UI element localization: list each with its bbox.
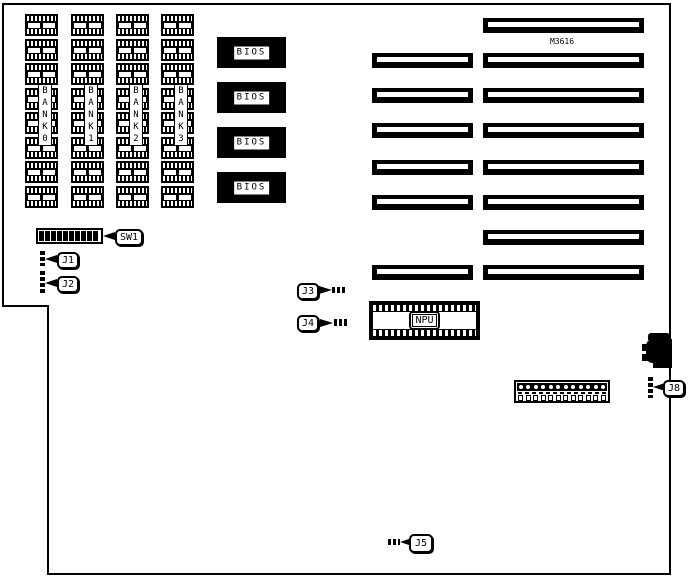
slot-contact-stripe (488, 199, 639, 204)
chip-window (119, 146, 131, 151)
chip-body-windows (164, 195, 191, 200)
dip-switch-position (75, 231, 80, 241)
expansion-slot-16bit-segment (372, 265, 473, 280)
chip-body-windows (119, 195, 146, 200)
bank-label-char: N (85, 109, 97, 121)
memory-chip (25, 161, 58, 183)
chip-window (74, 23, 86, 28)
npu-label: NPU (412, 314, 436, 327)
jumper-j3-pins (332, 287, 345, 293)
chip-window (179, 48, 191, 53)
slot-contact-stripe (488, 92, 639, 97)
bank-label-char: B (39, 85, 51, 97)
chip-window (28, 72, 40, 77)
memory-chip (116, 14, 149, 36)
chip-window (28, 146, 40, 151)
slot-contact-stripe (377, 269, 468, 274)
chip-window (43, 146, 55, 151)
chip-pins-top (73, 65, 102, 70)
chip-pins-top (118, 41, 147, 46)
chip-window (89, 23, 101, 28)
expansion-slot-main-segment (483, 195, 644, 210)
bank-label-char: N (39, 109, 51, 121)
bank-label-char: N (130, 109, 142, 121)
keyboard-connector-tab (642, 354, 648, 361)
chip-window (74, 170, 86, 175)
memory-chip (25, 14, 58, 36)
memory-chip (161, 63, 194, 85)
chip-body-windows (28, 146, 55, 151)
board-edge-step-horizontal (2, 305, 49, 307)
expansion-slot-main-segment (483, 18, 644, 33)
expansion-slot-main-segment (483, 53, 644, 68)
j8-label: J8 (663, 380, 685, 397)
power-pin-terminal (518, 395, 523, 401)
bank-label-char: K (175, 121, 187, 133)
chip-pins-bottom (73, 201, 102, 206)
expansion-slot-main-segment (483, 88, 644, 103)
chip-window (134, 48, 146, 53)
motherboard-diagram: M3616 SW1 J1 J2 J3 J4 J5 J8 NPU (0, 0, 688, 577)
slot-contact-stripe (377, 199, 468, 204)
chip-window (74, 48, 86, 53)
bank-label: BANK1 (84, 84, 98, 146)
chip-window (28, 170, 40, 175)
memory-chip (116, 63, 149, 85)
power-pin-terminal (593, 395, 598, 401)
chip-body-windows (74, 23, 101, 28)
board-edge-step-vertical (47, 305, 49, 575)
power-pin-terminal (563, 395, 568, 401)
power-pin-dot (541, 385, 545, 389)
chip-body-windows (119, 170, 146, 175)
chip-window (74, 195, 86, 200)
bank-label: BANK3 (174, 84, 188, 146)
power-connector-divider (518, 392, 606, 394)
bank-label-char: K (85, 121, 97, 133)
chip-body-windows (74, 146, 101, 151)
keyboard-connector-tab (642, 344, 648, 351)
chip-pins-bottom (73, 78, 102, 83)
expansion-slot-main-segment (483, 230, 644, 245)
board-edge-top (2, 3, 671, 5)
chip-pins-bottom (118, 29, 147, 34)
bank-label: BANK0 (38, 84, 52, 146)
bios-chip: BIOS (217, 127, 286, 158)
memory-chip (161, 39, 194, 61)
chip-pins-bottom (118, 152, 147, 157)
chip-window (164, 170, 176, 175)
chip-body-windows (74, 195, 101, 200)
dip-switch-position (51, 231, 56, 241)
sw1-label: SW1 (115, 229, 143, 246)
chip-pins-bottom (27, 54, 56, 59)
slot-contact-stripe (488, 269, 639, 274)
j3-arrow-icon (319, 286, 332, 294)
chip-window (164, 23, 176, 28)
j4-label: J4 (297, 315, 319, 332)
chip-pins-bottom (27, 78, 56, 83)
chip-body-windows (119, 23, 146, 28)
power-pin-terminal (548, 395, 553, 401)
chip-pins-bottom (118, 201, 147, 206)
chip-body-windows (164, 72, 191, 77)
memory-chip (116, 186, 149, 208)
dip-switch-position (39, 231, 44, 241)
slot-contact-stripe (377, 57, 468, 62)
chip-window (179, 72, 191, 77)
dip-switch-position (81, 231, 86, 241)
memory-chip (71, 161, 104, 183)
power-pin-terminal (578, 395, 583, 401)
bank-label-char: B (175, 85, 187, 97)
chip-pins-bottom (163, 29, 192, 34)
chip-window (43, 195, 55, 200)
expansion-slot-16bit-segment (372, 88, 473, 103)
bank-label-char: A (175, 97, 187, 109)
chip-pins-top (163, 65, 192, 70)
chip-pins-top (163, 16, 192, 21)
chip-pins-bottom (118, 78, 147, 83)
jumper-j4-pins (334, 319, 347, 326)
chip-body-windows (119, 48, 146, 53)
chip-window (28, 48, 40, 53)
chip-pins-top (73, 41, 102, 46)
expansion-slot-16bit-segment (372, 123, 473, 138)
bank-label-char: K (130, 121, 142, 133)
chip-pins-bottom (73, 29, 102, 34)
power-pin-terminal (571, 395, 576, 401)
chip-window (134, 146, 146, 151)
chip-window (119, 170, 131, 175)
chip-pins-bottom (73, 54, 102, 59)
memory-chip (161, 186, 194, 208)
memory-chip (71, 186, 104, 208)
chip-pins-top (163, 41, 192, 46)
jumper-j5-pins (388, 539, 400, 545)
keyboard-connector-icon (646, 339, 672, 363)
chip-window (179, 146, 191, 151)
chip-pins-top (73, 163, 102, 168)
bank-label-char: B (130, 85, 142, 97)
sw1-arrow-icon (103, 232, 115, 240)
chip-window (179, 170, 191, 175)
chip-pins-top (163, 163, 192, 168)
chip-pins-top (73, 16, 102, 21)
expansion-slot-main-segment (483, 160, 644, 175)
dip-switch-position (45, 231, 50, 241)
bank-label-char: A (130, 97, 142, 109)
chip-body-windows (28, 195, 55, 200)
j3-label: J3 (297, 283, 319, 300)
chip-window (134, 195, 146, 200)
chip-body-windows (74, 170, 101, 175)
slot-contact-stripe (488, 234, 639, 239)
chip-window (28, 195, 40, 200)
chip-body-windows (28, 23, 55, 28)
chip-body-windows (164, 23, 191, 28)
power-pin-dot (549, 385, 553, 389)
npu-socket: NPU (369, 301, 480, 340)
slot-contact-stripe (377, 127, 468, 132)
bank-label: BANK2 (129, 84, 143, 146)
expansion-slot-main-segment (483, 265, 644, 280)
chip-body-windows (28, 170, 55, 175)
chip-pins-bottom (73, 152, 102, 157)
power-connector (514, 380, 610, 403)
chip-pins-top (118, 16, 147, 21)
board-edge-right (669, 3, 671, 575)
chip-pins-bottom (163, 176, 192, 181)
chip-pins-bottom (163, 201, 192, 206)
dip-switch-sw1 (36, 228, 103, 244)
chip-pins-top (163, 188, 192, 193)
power-pin-dot (564, 385, 568, 389)
bios-label: BIOS (234, 91, 270, 104)
bios-chip: BIOS (217, 37, 286, 68)
bank-label-char: A (39, 97, 51, 109)
chip-body-windows (28, 48, 55, 53)
memory-chip (116, 39, 149, 61)
chip-window (43, 48, 55, 53)
dip-switch-position (93, 231, 98, 241)
chip-window (89, 146, 101, 151)
chip-window (119, 48, 131, 53)
j1-label: J1 (57, 252, 79, 269)
bank-label-char: B (85, 85, 97, 97)
power-pin-dot (556, 385, 560, 389)
slot-contact-stripe (377, 164, 468, 169)
power-connector-pin-row (517, 383, 607, 391)
expansion-slot-main-segment (483, 123, 644, 138)
chip-window (179, 195, 191, 200)
j4-arrow-icon (320, 319, 333, 327)
power-pin-dot (594, 385, 598, 389)
bank-label-char: 3 (175, 133, 187, 145)
dip-switch-position (87, 231, 92, 241)
memory-chip (71, 14, 104, 36)
memory-chip (25, 39, 58, 61)
chip-window (43, 23, 55, 28)
power-connector-terminal-row (518, 395, 606, 401)
chip-body-windows (164, 48, 191, 53)
bios-chip: BIOS (217, 172, 286, 203)
j1-arrow-icon (45, 255, 57, 263)
chip-window (74, 72, 86, 77)
chip-pins-top (118, 188, 147, 193)
npu-socket-body: NPU (373, 312, 476, 329)
chip-pins-bottom (27, 201, 56, 206)
bios-label: BIOS (234, 46, 270, 59)
power-pin-dot (579, 385, 583, 389)
npu-socket-pins-bottom (373, 330, 476, 336)
chip-window (89, 72, 101, 77)
chip-window (134, 23, 146, 28)
chip-window (119, 23, 131, 28)
chip-pins-top (27, 65, 56, 70)
power-pin-dot (519, 385, 523, 389)
bios-label: BIOS (234, 136, 270, 149)
power-pin-dot (526, 385, 530, 389)
chip-window (43, 72, 55, 77)
memory-chip (161, 161, 194, 183)
chip-body-windows (119, 72, 146, 77)
chip-body-windows (28, 72, 55, 77)
board-edge-bottom (47, 573, 671, 575)
chip-body-windows (74, 48, 101, 53)
dip-switch-position (63, 231, 68, 241)
keyboard-connector-icon (653, 362, 672, 368)
chip-window (74, 146, 86, 151)
chip-pins-bottom (118, 176, 147, 181)
memory-chip (116, 161, 149, 183)
chip-pins-top (73, 188, 102, 193)
power-pin-terminal (586, 395, 591, 401)
j5-label: J5 (409, 534, 433, 553)
chip-window (89, 195, 101, 200)
chip-pins-bottom (73, 176, 102, 181)
slot-contact-stripe (488, 127, 639, 132)
bank-label-char: 0 (39, 133, 51, 145)
slot-contact-stripe (377, 92, 468, 97)
expansion-slot-16bit-segment (372, 195, 473, 210)
bank-label-char: 1 (85, 133, 97, 145)
chip-pins-top (118, 65, 147, 70)
chip-window (119, 195, 131, 200)
chip-pins-bottom (163, 78, 192, 83)
slot-contact-stripe (488, 164, 639, 169)
j2-arrow-icon (45, 279, 57, 287)
bank-label-char: N (175, 109, 187, 121)
power-pin-dot (571, 385, 575, 389)
bank-label-char: A (85, 97, 97, 109)
chip-window (164, 195, 176, 200)
bios-label: BIOS (234, 181, 270, 194)
expansion-slot-16bit-segment (372, 53, 473, 68)
chip-window (164, 48, 176, 53)
chip-window (43, 170, 55, 175)
npu-label-box: NPU (409, 311, 439, 330)
model-label: M3616 (527, 37, 597, 46)
power-pin-terminal (533, 395, 538, 401)
j2-label: J2 (57, 276, 79, 293)
slot-contact-stripe (488, 22, 639, 27)
power-pin-dot (534, 385, 538, 389)
chip-body-windows (119, 146, 146, 151)
chip-body-windows (164, 146, 191, 151)
chip-pins-top (27, 188, 56, 193)
chip-pins-top (118, 163, 147, 168)
chip-pins-bottom (27, 29, 56, 34)
bank-label-char: K (39, 121, 51, 133)
chip-window (134, 170, 146, 175)
slot-contact-stripe (488, 57, 639, 62)
chip-pins-top (27, 16, 56, 21)
memory-chip (71, 39, 104, 61)
memory-chip (71, 63, 104, 85)
chip-window (28, 23, 40, 28)
expansion-slot-16bit-segment (372, 160, 473, 175)
chip-window (89, 48, 101, 53)
power-pin-dot (601, 385, 605, 389)
chip-pins-bottom (27, 176, 56, 181)
chip-window (164, 72, 176, 77)
chip-window (119, 72, 131, 77)
dip-switch-position (57, 231, 62, 241)
power-pin-terminal (526, 395, 531, 401)
power-pin-terminal (601, 395, 606, 401)
chip-window (179, 23, 191, 28)
chip-body-windows (164, 170, 191, 175)
power-pin-terminal (556, 395, 561, 401)
chip-pins-top (27, 41, 56, 46)
bank-label-char: 2 (130, 133, 142, 145)
chip-pins-top (27, 163, 56, 168)
power-pin-dot (586, 385, 590, 389)
bios-chip: BIOS (217, 82, 286, 113)
chip-pins-bottom (163, 54, 192, 59)
chip-body-windows (74, 72, 101, 77)
memory-chip (161, 14, 194, 36)
chip-pins-bottom (27, 152, 56, 157)
power-pin-terminal (541, 395, 546, 401)
chip-window (164, 146, 176, 151)
chip-pins-bottom (118, 54, 147, 59)
dip-switch-position (69, 231, 74, 241)
chip-window (89, 170, 101, 175)
chip-window (134, 72, 146, 77)
board-edge-left (2, 3, 4, 307)
memory-chip (25, 63, 58, 85)
memory-chip (25, 186, 58, 208)
chip-pins-bottom (163, 152, 192, 157)
